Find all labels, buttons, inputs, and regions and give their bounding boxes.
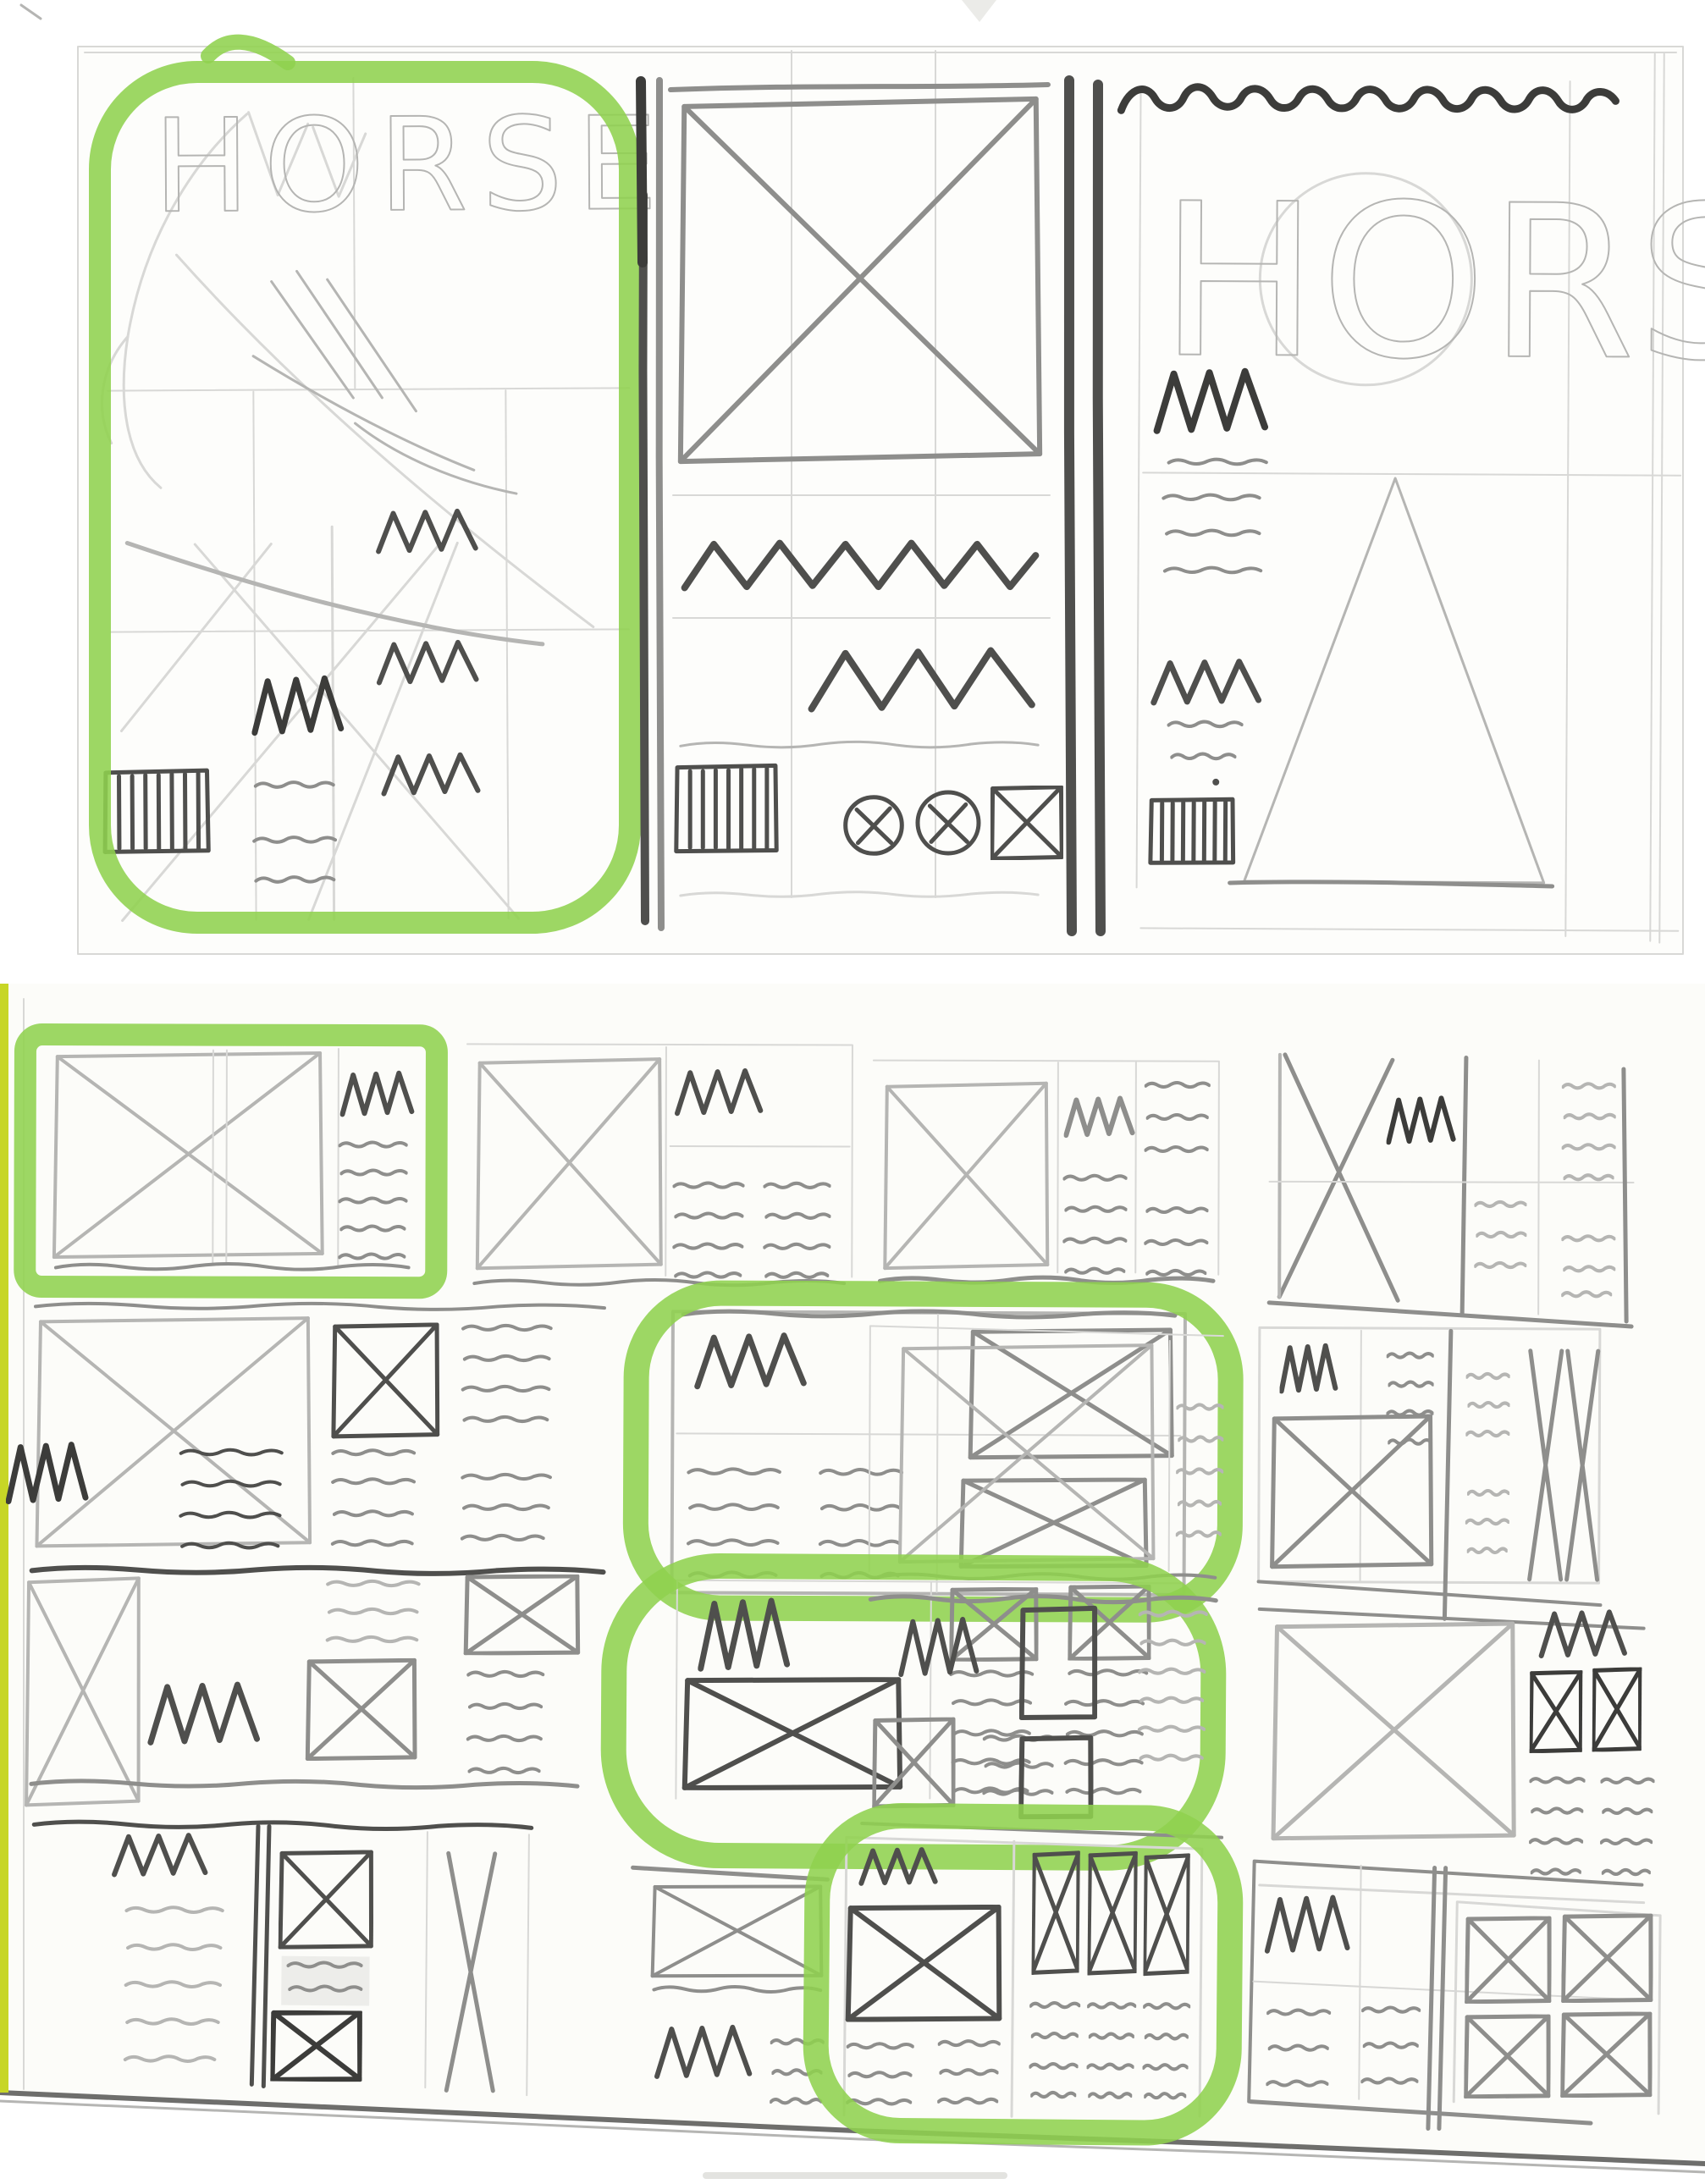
scanned-sketch-page: HORSE [0, 0, 1705, 2184]
cover-page: HORSE [21, 0, 1705, 954]
corner-smudge [21, 5, 41, 19]
sketch-canvas: HORSE [0, 0, 1705, 2184]
edge-highlight-stripe [0, 984, 8, 2093]
horse-title-right: HORSE [1159, 158, 1705, 409]
horse-title-left: HORSE [152, 89, 671, 241]
thumbnail-page [0, 984, 1705, 2179]
bottom-smudge [703, 2172, 1007, 2179]
text-dot [1212, 779, 1219, 786]
torn-notch [962, 0, 996, 22]
